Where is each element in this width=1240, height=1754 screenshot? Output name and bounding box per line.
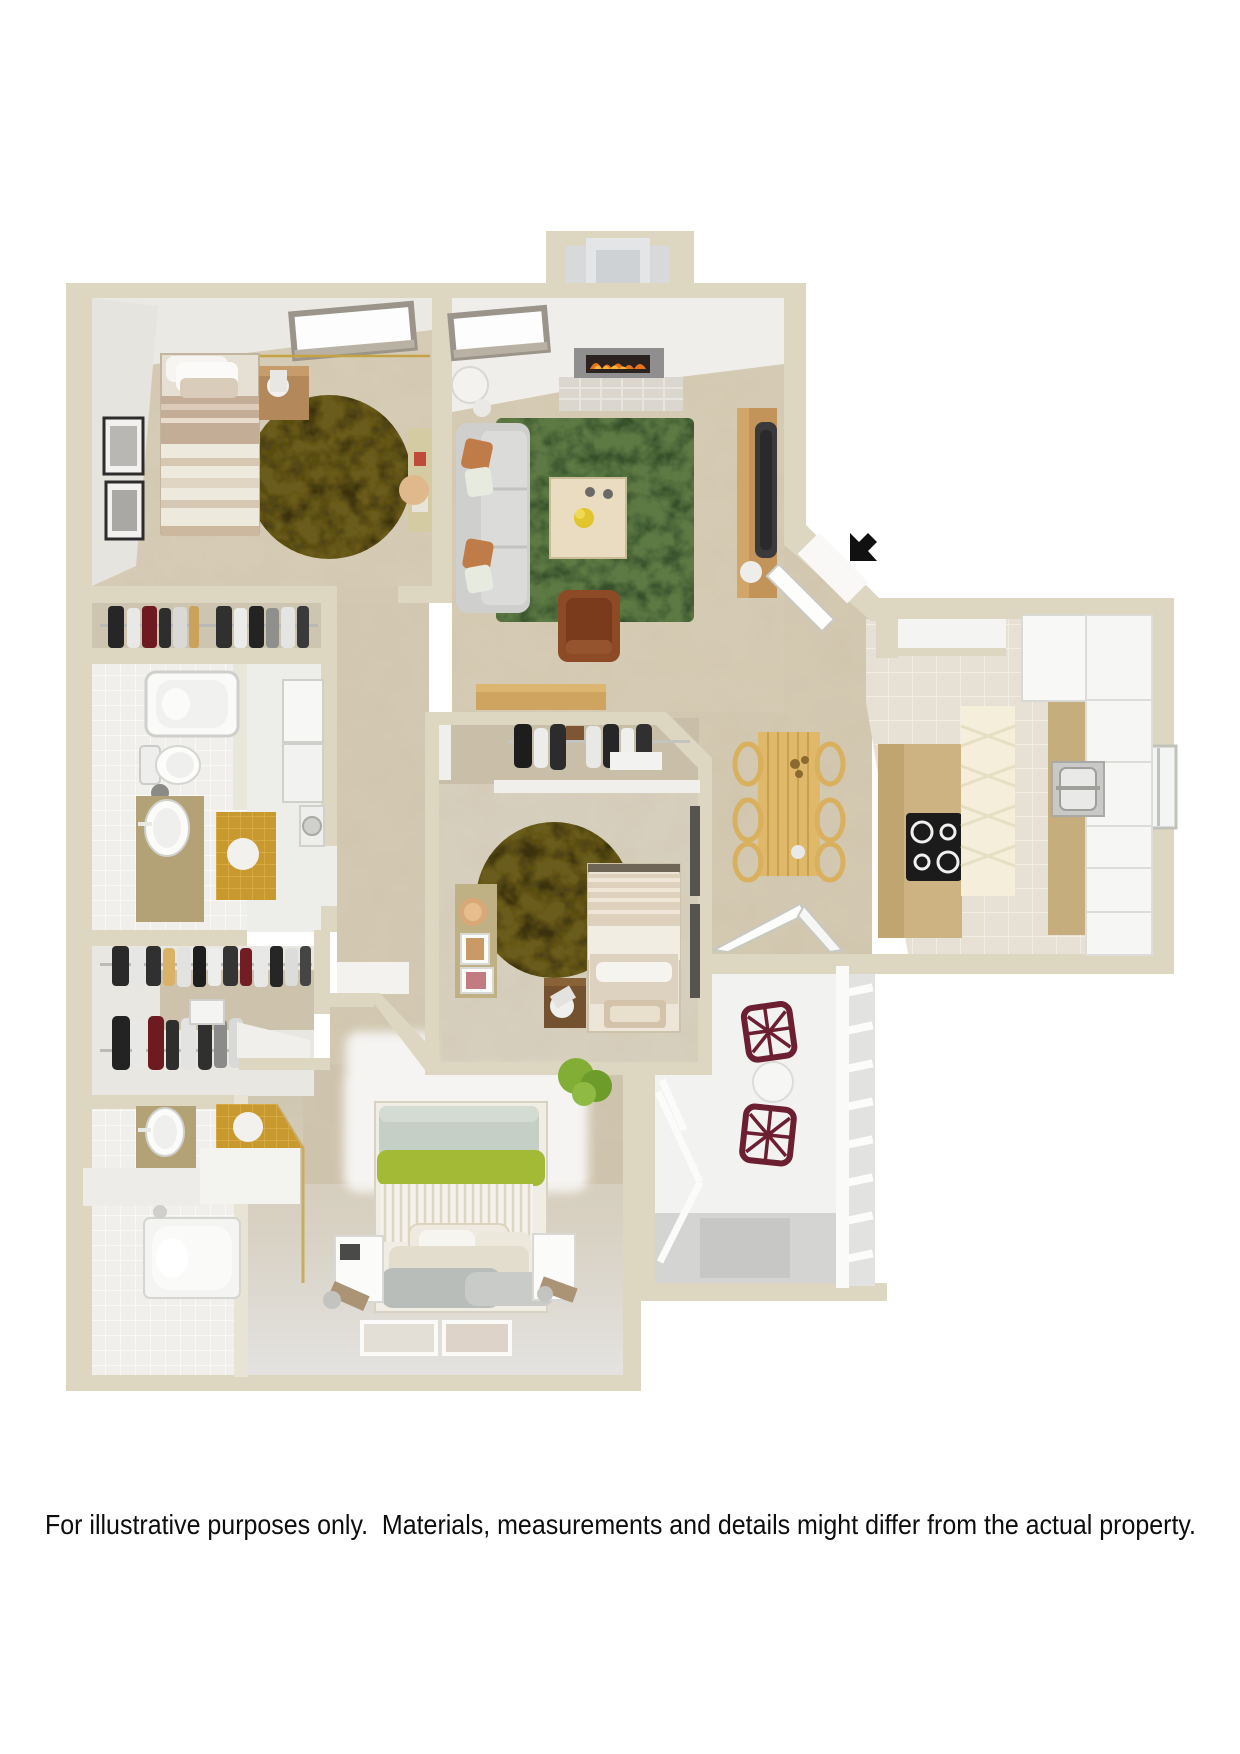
svg-text:For illustrative purposes only: For illustrative purposes only. Material…	[45, 1509, 1196, 1540]
